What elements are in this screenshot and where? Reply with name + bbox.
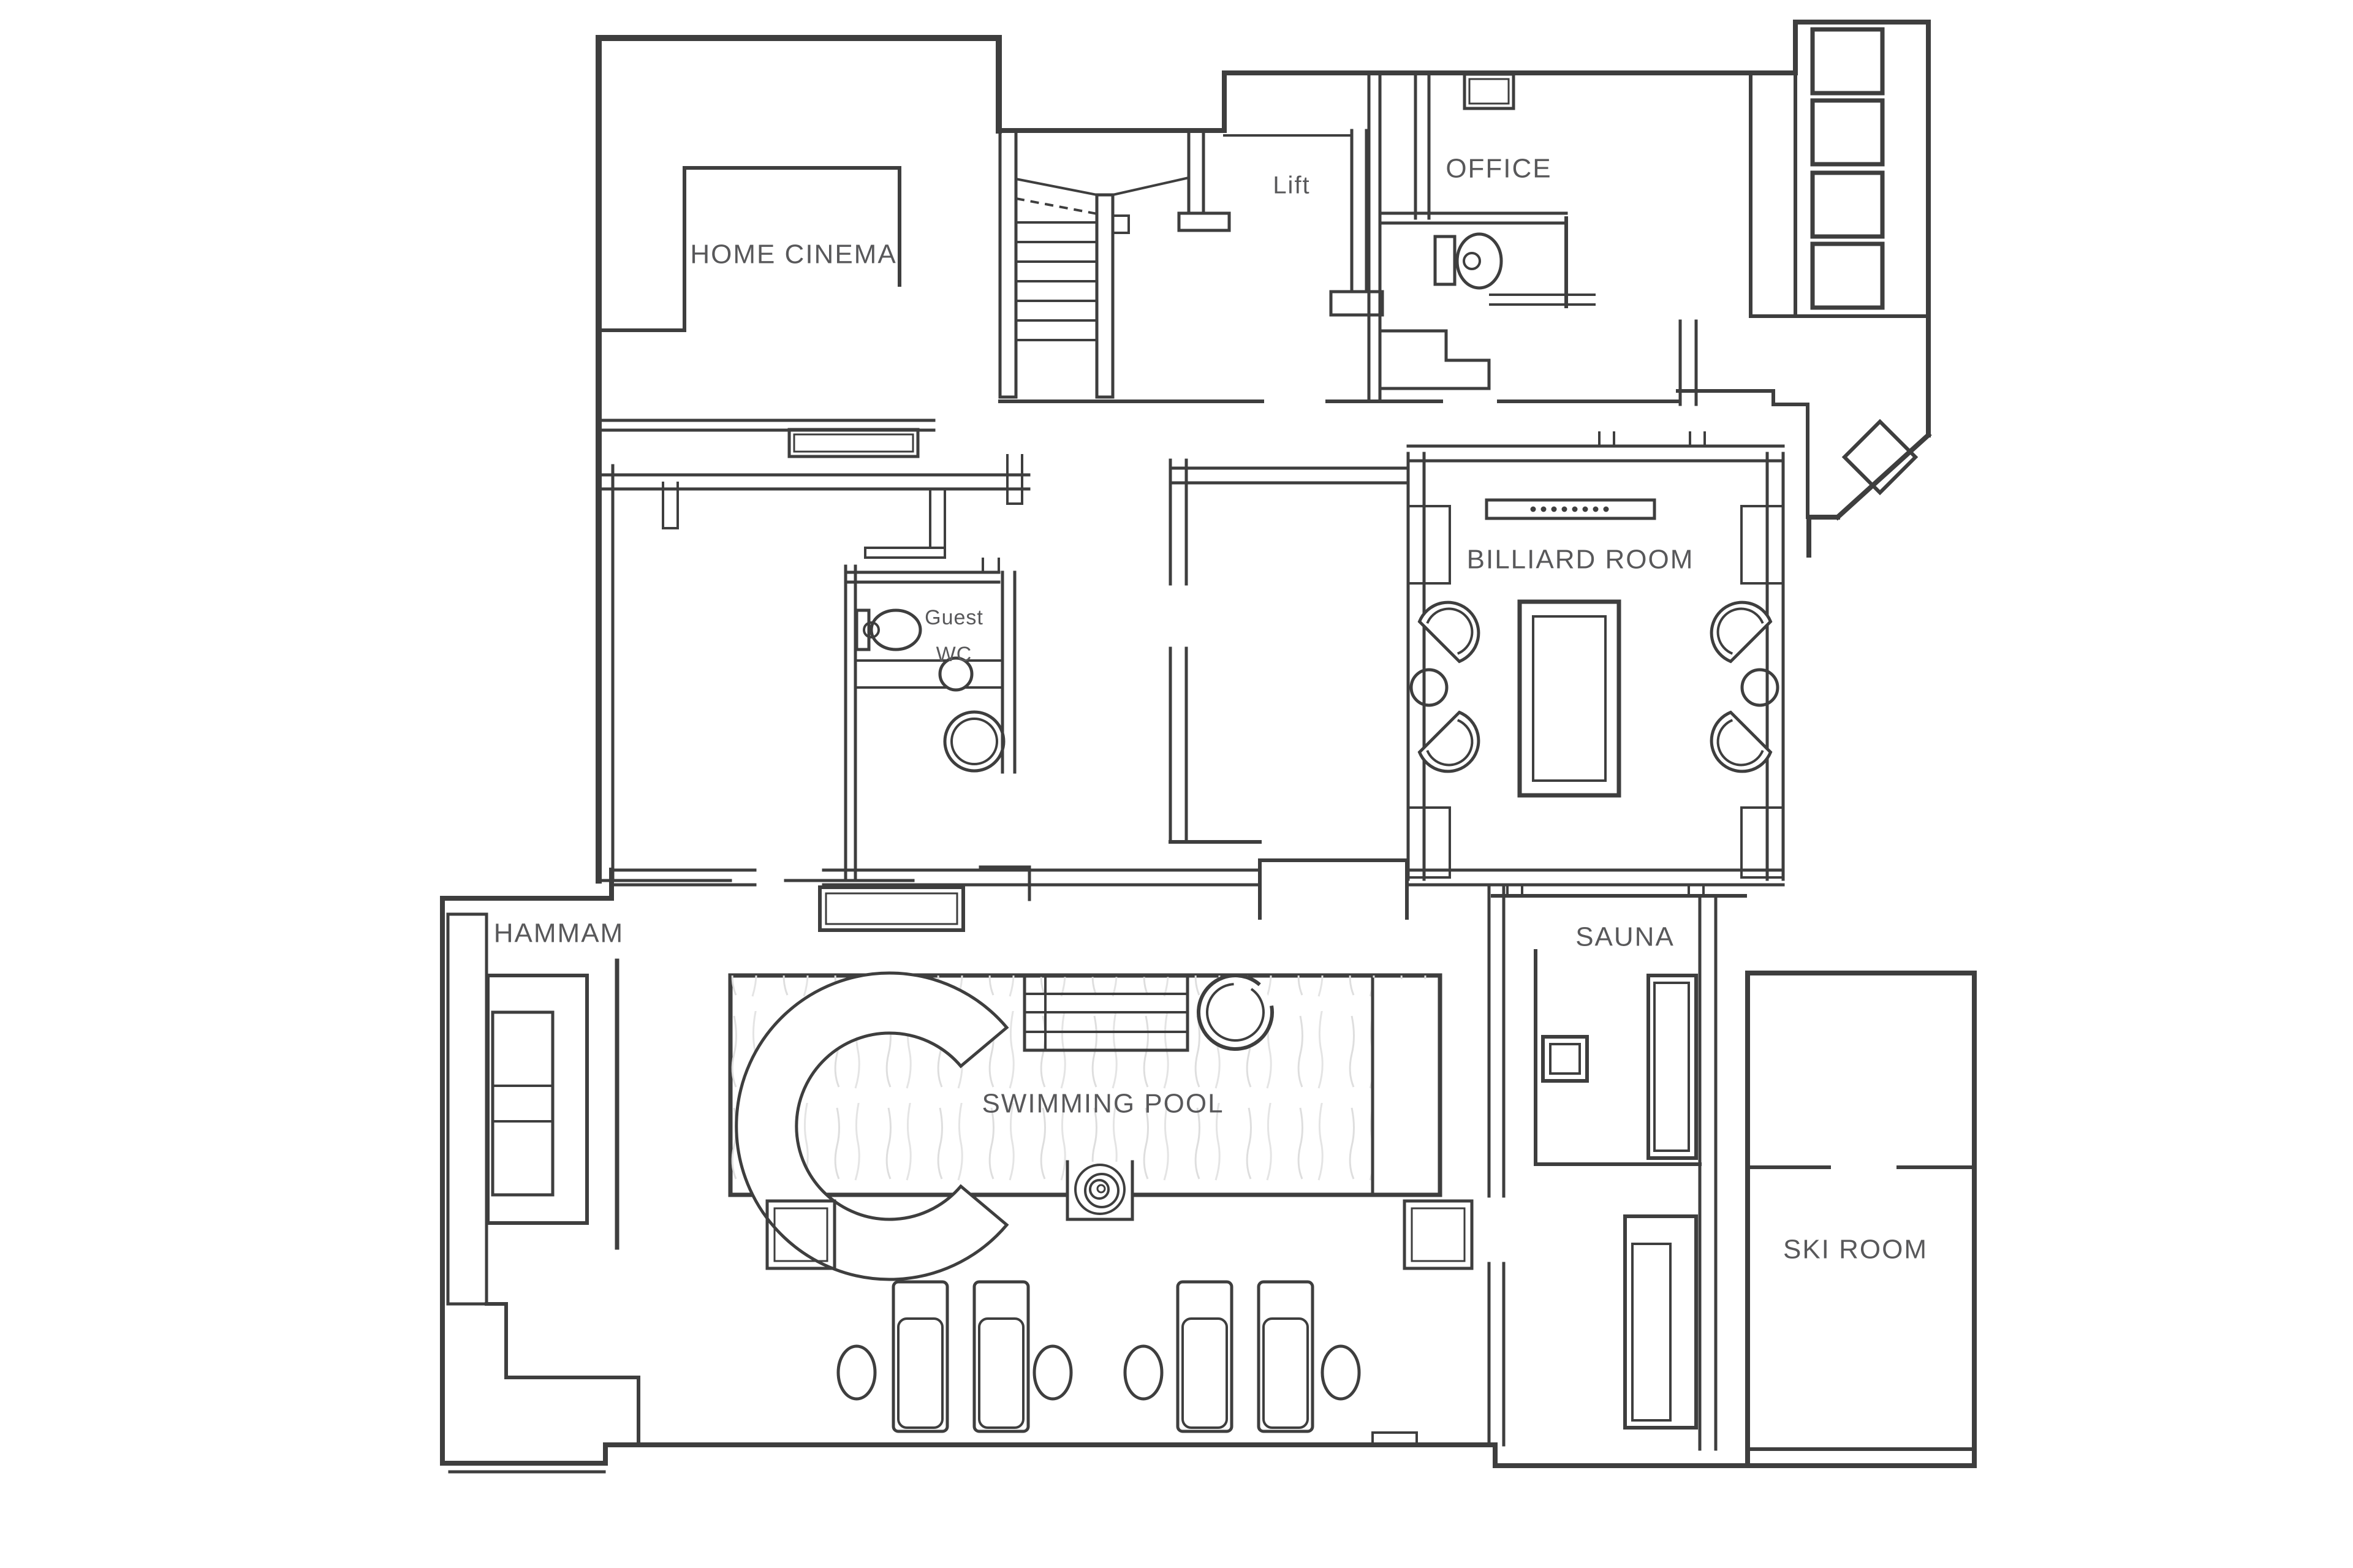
room-label-sauna: SAUNA [1575, 922, 1675, 952]
room-label-lift: Lift [1273, 172, 1310, 199]
lift: Lift [1179, 131, 1382, 315]
armchair [1699, 711, 1772, 784]
room-label-ski-room: SKI ROOM [1783, 1235, 1928, 1265]
hammam-bench [488, 975, 587, 1223]
room-label-hammam: HAMMAM [494, 918, 624, 949]
window-recess [1741, 506, 1783, 583]
room-label-swimming-pool: SWIMMING POOL [982, 1089, 1224, 1119]
side-table-oval [1034, 1346, 1071, 1399]
sauna-bench [1648, 975, 1696, 1158]
room-label-office: OFFICE [1446, 154, 1552, 184]
room-guest-wc: Guest WC [846, 559, 1029, 900]
stair-center-stringer [1097, 195, 1113, 397]
window-recess [1408, 506, 1450, 583]
room-sauna: SAUNA [1489, 885, 1716, 1449]
room-ski: SKI ROOM [1748, 973, 1974, 1466]
room-hammam: HAMMAM [448, 914, 638, 1445]
room-label-guest-wc-1: Guest [925, 606, 983, 629]
lift-door-jamb-left [1179, 213, 1229, 230]
billiard-sideboard [1487, 500, 1654, 518]
window-recess [1741, 808, 1783, 877]
staircase [1000, 132, 1189, 397]
sun-lounger [974, 1282, 1028, 1431]
central-room [1170, 460, 1408, 918]
lift-door-jamb-right [1331, 292, 1382, 315]
office-wc-toilet [1435, 234, 1501, 288]
side-table [1411, 670, 1447, 705]
side-table-oval [838, 1346, 875, 1399]
window-recess [1408, 808, 1450, 877]
cinema-sideboard [789, 430, 918, 456]
sauna-stove [1543, 1037, 1587, 1081]
side-table [1742, 670, 1778, 705]
office-wc [1380, 213, 1596, 388]
guest-wc-toilet [857, 610, 920, 650]
armchair [1699, 589, 1772, 663]
closet-box [1813, 173, 1882, 237]
guest-wc-shower [945, 712, 1004, 771]
room-label-billiard-room: BILLIARD ROOM [1467, 545, 1694, 575]
deck-stool [1404, 1201, 1472, 1268]
office-cabinet [1464, 74, 1514, 108]
pool-bench [820, 887, 963, 930]
room-office: OFFICE [1369, 73, 1552, 401]
room-label-guest-wc-2: WC [936, 643, 972, 666]
left-room [599, 466, 913, 881]
closet-box [1813, 244, 1882, 308]
vestibule-bench [1625, 1216, 1696, 1428]
closet-box [1813, 29, 1882, 93]
billiard-table [1520, 602, 1619, 795]
sun-lounger [1178, 1282, 1232, 1431]
sun-lounger [1259, 1282, 1313, 1431]
side-table-oval [1322, 1346, 1359, 1399]
room-label-home-cinema: HOME CINEMA [690, 240, 896, 270]
wardrobe-closets [1678, 22, 1928, 517]
closet-box [1813, 100, 1882, 164]
sun-lounger [893, 1282, 947, 1431]
floor-plan-page: HOME CINEMA Lift OFFICE [0, 0, 2353, 1568]
armchair [1418, 711, 1491, 784]
room-billiard: BILLIARD ROOM [1408, 433, 1783, 879]
floor-plan-svg: HOME CINEMA Lift OFFICE [0, 0, 2353, 1568]
side-table-oval [1125, 1346, 1162, 1399]
armchair [1418, 589, 1491, 663]
